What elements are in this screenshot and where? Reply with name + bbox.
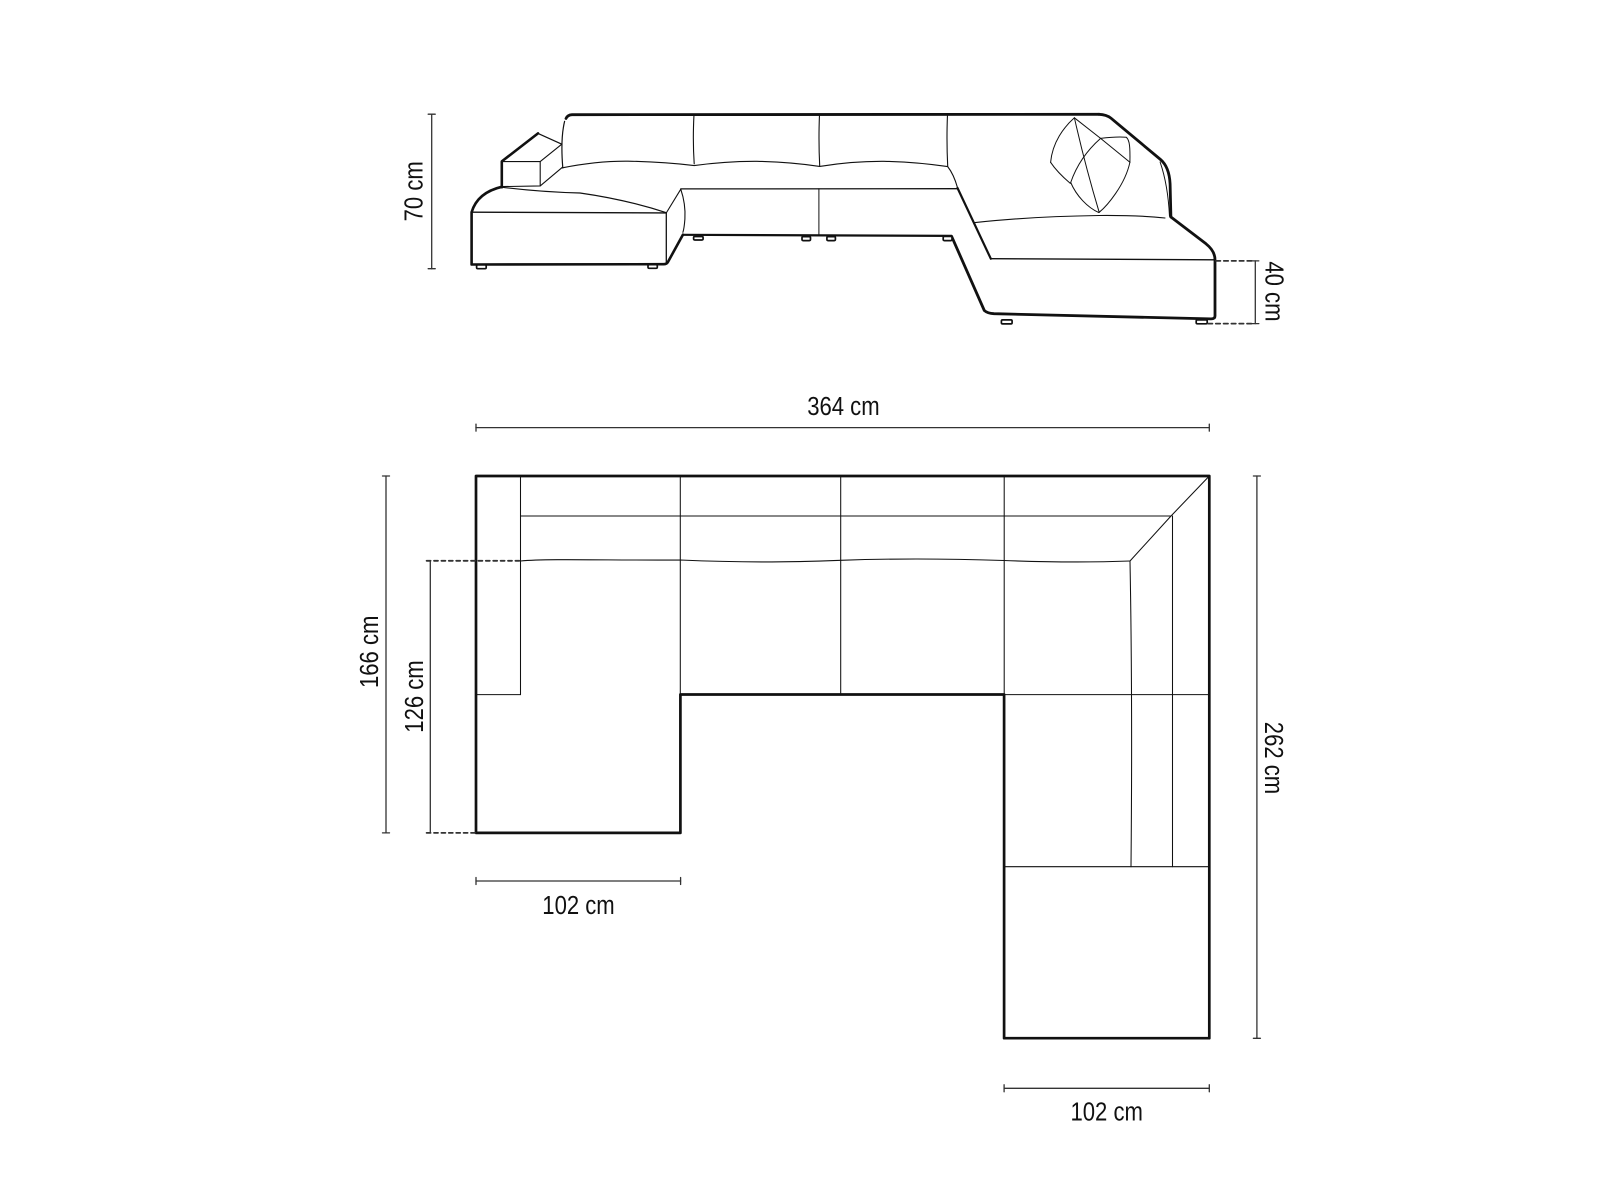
svg-text:102 cm: 102 cm (542, 891, 614, 920)
svg-text:70 cm: 70 cm (400, 161, 429, 221)
svg-text:40 cm: 40 cm (1259, 261, 1288, 321)
svg-text:126 cm: 126 cm (400, 660, 429, 732)
svg-text:166 cm: 166 cm (355, 616, 384, 688)
svg-text:102 cm: 102 cm (1070, 1098, 1142, 1127)
svg-text:262 cm: 262 cm (1258, 722, 1287, 794)
svg-text:364 cm: 364 cm (807, 392, 879, 421)
